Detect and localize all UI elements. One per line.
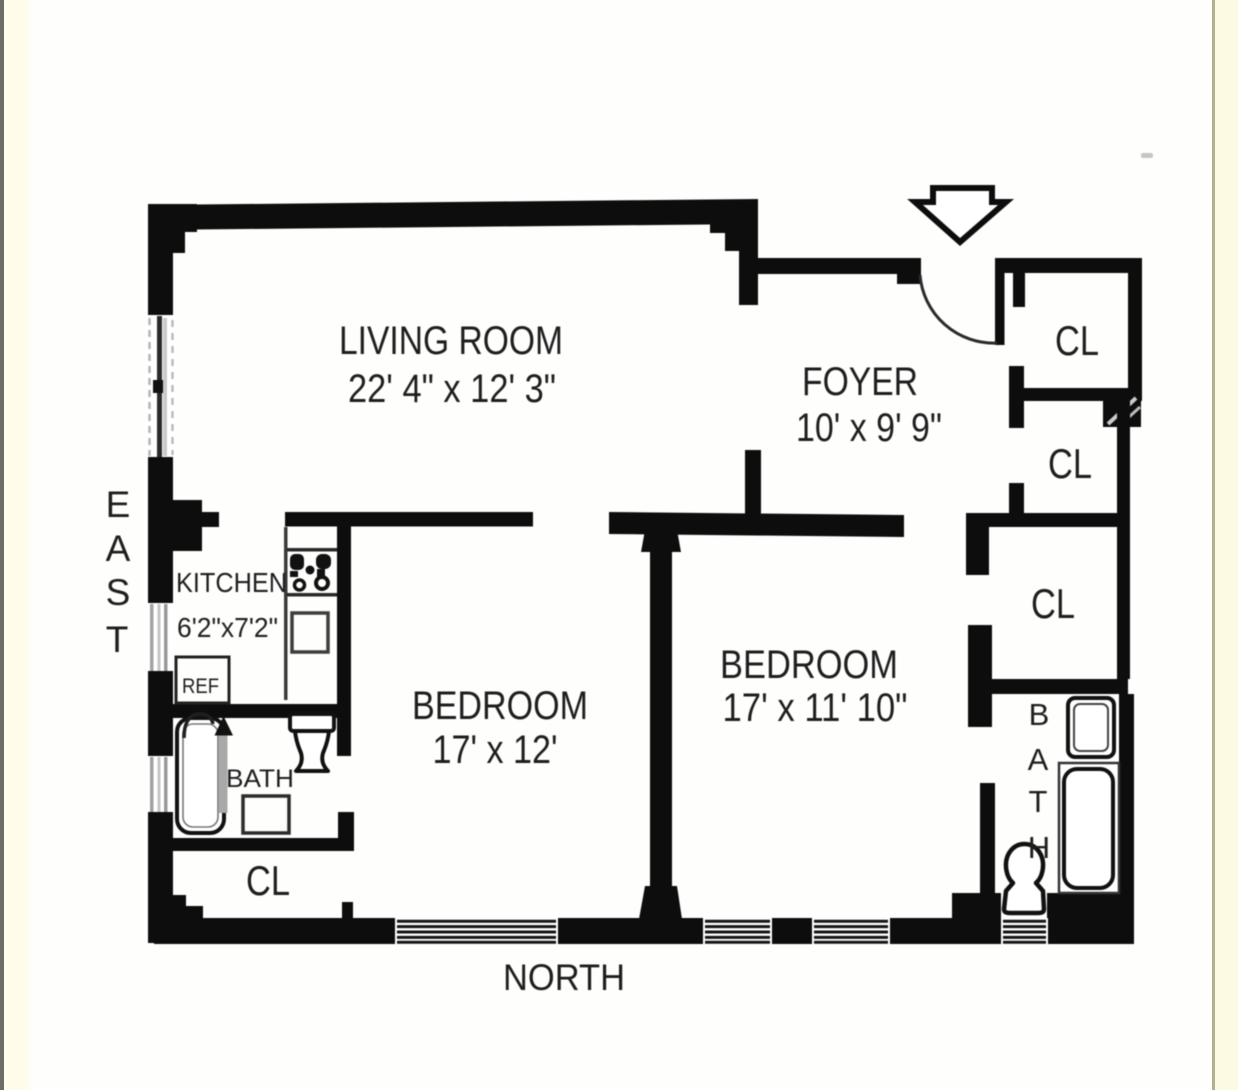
svg-text:17' x 12': 17' x 12' bbox=[433, 728, 558, 772]
svg-text:BEDROOM: BEDROOM bbox=[412, 684, 588, 728]
svg-text:CL: CL bbox=[1055, 317, 1099, 364]
svg-text:BEDROOM: BEDROOM bbox=[720, 643, 898, 687]
svg-text:LIVING ROOM: LIVING ROOM bbox=[339, 319, 563, 363]
svg-text:FOYER: FOYER bbox=[802, 360, 918, 404]
svg-text:CL: CL bbox=[246, 857, 290, 904]
svg-text:T: T bbox=[1029, 784, 1048, 819]
svg-text:NORTH: NORTH bbox=[503, 957, 625, 998]
svg-text:22' 4" x 12' 3": 22' 4" x 12' 3" bbox=[348, 367, 556, 411]
svg-text:A: A bbox=[106, 528, 131, 569]
svg-text:A: A bbox=[1028, 742, 1049, 777]
svg-text:REF: REF bbox=[182, 675, 219, 698]
svg-text:CL: CL bbox=[1048, 440, 1092, 487]
svg-text:6'2"x7'2": 6'2"x7'2" bbox=[177, 612, 278, 643]
svg-text:17' x 11' 10": 17' x 11' 10" bbox=[723, 686, 908, 730]
svg-text:T: T bbox=[106, 619, 129, 660]
svg-text:E: E bbox=[106, 484, 131, 525]
svg-text:H: H bbox=[1028, 830, 1050, 865]
svg-text:10' x 9' 9": 10' x 9' 9" bbox=[796, 406, 942, 450]
svg-text:S: S bbox=[106, 572, 131, 613]
svg-text:BATH: BATH bbox=[226, 765, 294, 793]
svg-text:KITCHEN: KITCHEN bbox=[176, 567, 287, 598]
svg-text:CL: CL bbox=[1031, 580, 1075, 627]
svg-text:B: B bbox=[1029, 697, 1050, 732]
